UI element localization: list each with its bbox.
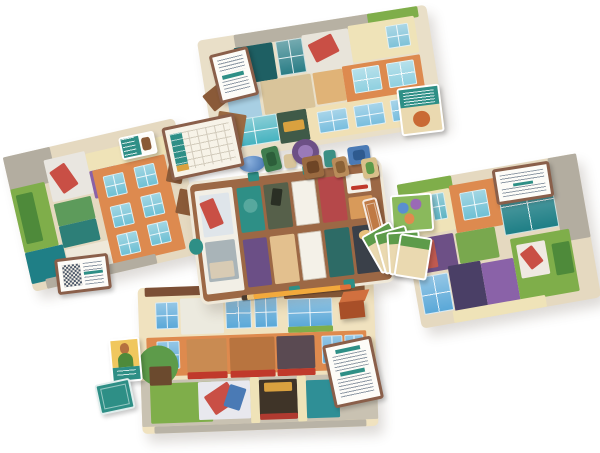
- empty-slot-top: [291, 179, 321, 227]
- lower-window-2: [353, 102, 386, 128]
- teal-card-southwest: [94, 378, 136, 416]
- lower-window-1: [316, 107, 349, 133]
- top-window-left: [155, 301, 180, 330]
- character-card-southwest: [108, 337, 143, 384]
- furniture-token-inner: [306, 160, 319, 174]
- creature-0: [398, 202, 409, 214]
- orange-top-window: [459, 188, 491, 220]
- teal-room-card: [324, 227, 354, 277]
- wall-window-2: [386, 60, 417, 88]
- palm-token: [360, 157, 379, 179]
- checker-pattern: [62, 263, 83, 288]
- card-fan-east-3: [393, 233, 432, 281]
- dining-room: [187, 338, 228, 373]
- top-window-2: [254, 296, 279, 327]
- orange-room: [312, 69, 347, 105]
- creature-1: [410, 199, 421, 211]
- storefront-sign: [264, 382, 293, 392]
- cube-front: [339, 300, 366, 320]
- red-deck: [318, 176, 348, 224]
- item-illustration: [412, 110, 431, 128]
- tan-token-inner: [335, 161, 346, 174]
- pad-total-cell: [177, 164, 189, 172]
- palm-token-inner: [365, 162, 376, 175]
- green-board-token-inner: [265, 151, 277, 166]
- flower-window: [287, 297, 333, 328]
- wooden-box-token: [338, 290, 371, 320]
- furniture-token: [301, 154, 325, 179]
- upper-window: [385, 22, 412, 49]
- item-card-northeast: [396, 84, 445, 137]
- split-picture: [140, 137, 152, 151]
- tree-trunk: [150, 366, 172, 386]
- reference-card-west: [54, 253, 112, 295]
- card-back-inner: [100, 383, 130, 409]
- dark-room: [276, 335, 315, 370]
- purple-room-card: [242, 237, 272, 287]
- pad-bed: [209, 260, 235, 278]
- main-board-center: [186, 159, 396, 306]
- table-scene: [0, 0, 600, 453]
- empty-slot-bottom: [297, 231, 327, 281]
- tan-token: [331, 156, 350, 179]
- portrait-body: [117, 352, 133, 368]
- wall-window-1: [352, 65, 383, 93]
- green-room: [455, 227, 500, 264]
- creature-2: [404, 213, 415, 225]
- split-left: [120, 136, 141, 158]
- fan-banner: [400, 235, 430, 250]
- tab-top-1: [247, 172, 259, 182]
- cream-room-card: [270, 234, 300, 284]
- ref-lines-bottom: [502, 183, 546, 198]
- top-window-1: [225, 297, 252, 329]
- golfer-figure: [270, 188, 281, 206]
- living-room: [229, 336, 275, 371]
